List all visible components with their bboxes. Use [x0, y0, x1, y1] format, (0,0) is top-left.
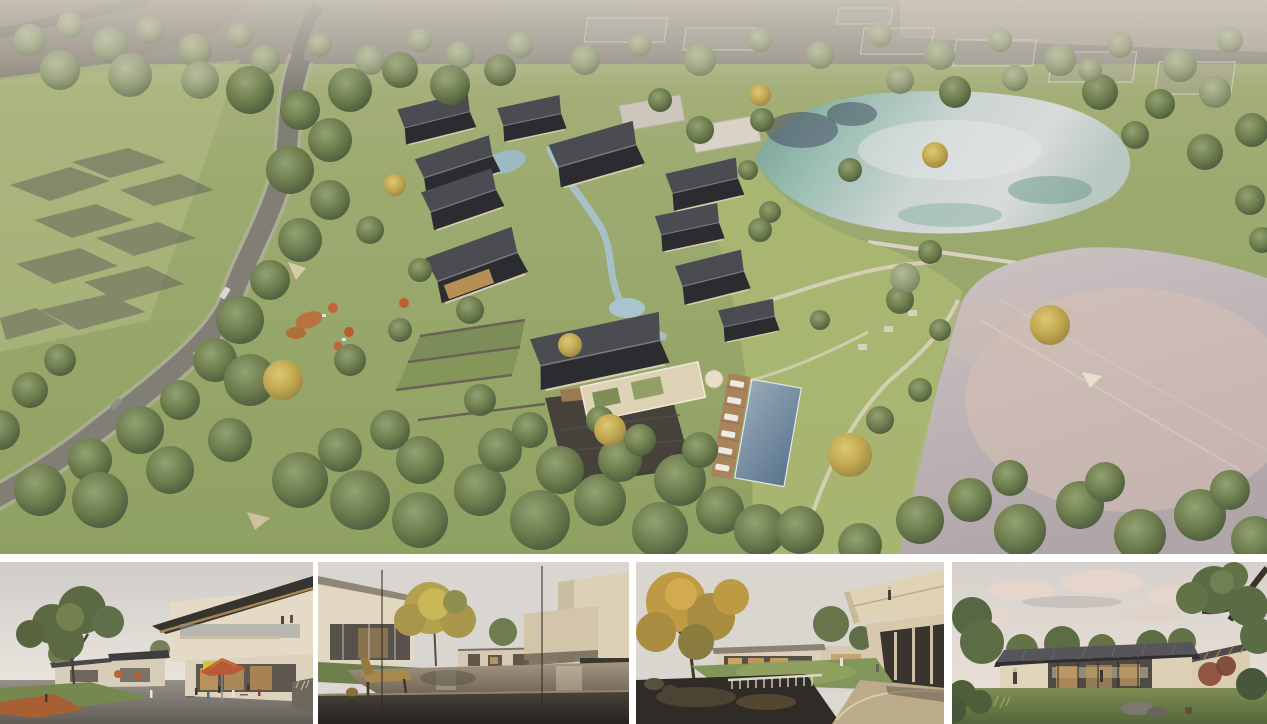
lawn [952, 688, 1267, 724]
reflecting-pond-illustration [318, 562, 629, 724]
foreground-deck [318, 690, 629, 724]
thumbnail-street-cafe [0, 562, 313, 724]
main-aerial-render-panel [0, 0, 1267, 554]
pond-and-weir [636, 674, 841, 724]
street-cafe-illustration [0, 562, 313, 724]
thumbnail-lawn-pavilion [952, 562, 1267, 724]
thumbnail-waterfall-courtyard [636, 562, 944, 724]
pavilion [994, 642, 1258, 694]
aerial-render-illustration [0, 0, 1267, 554]
presentation-board [0, 0, 1267, 724]
lawn-pavilion-illustration [952, 562, 1267, 724]
figure-inside [1100, 670, 1103, 682]
thumbnail-reflecting-pond [318, 562, 629, 724]
waterfall-courtyard-illustration [636, 562, 944, 724]
figure-on-lawn [1013, 668, 1017, 684]
thumbnail-row [0, 562, 1267, 724]
atmosphere-haze [0, 0, 1267, 90]
